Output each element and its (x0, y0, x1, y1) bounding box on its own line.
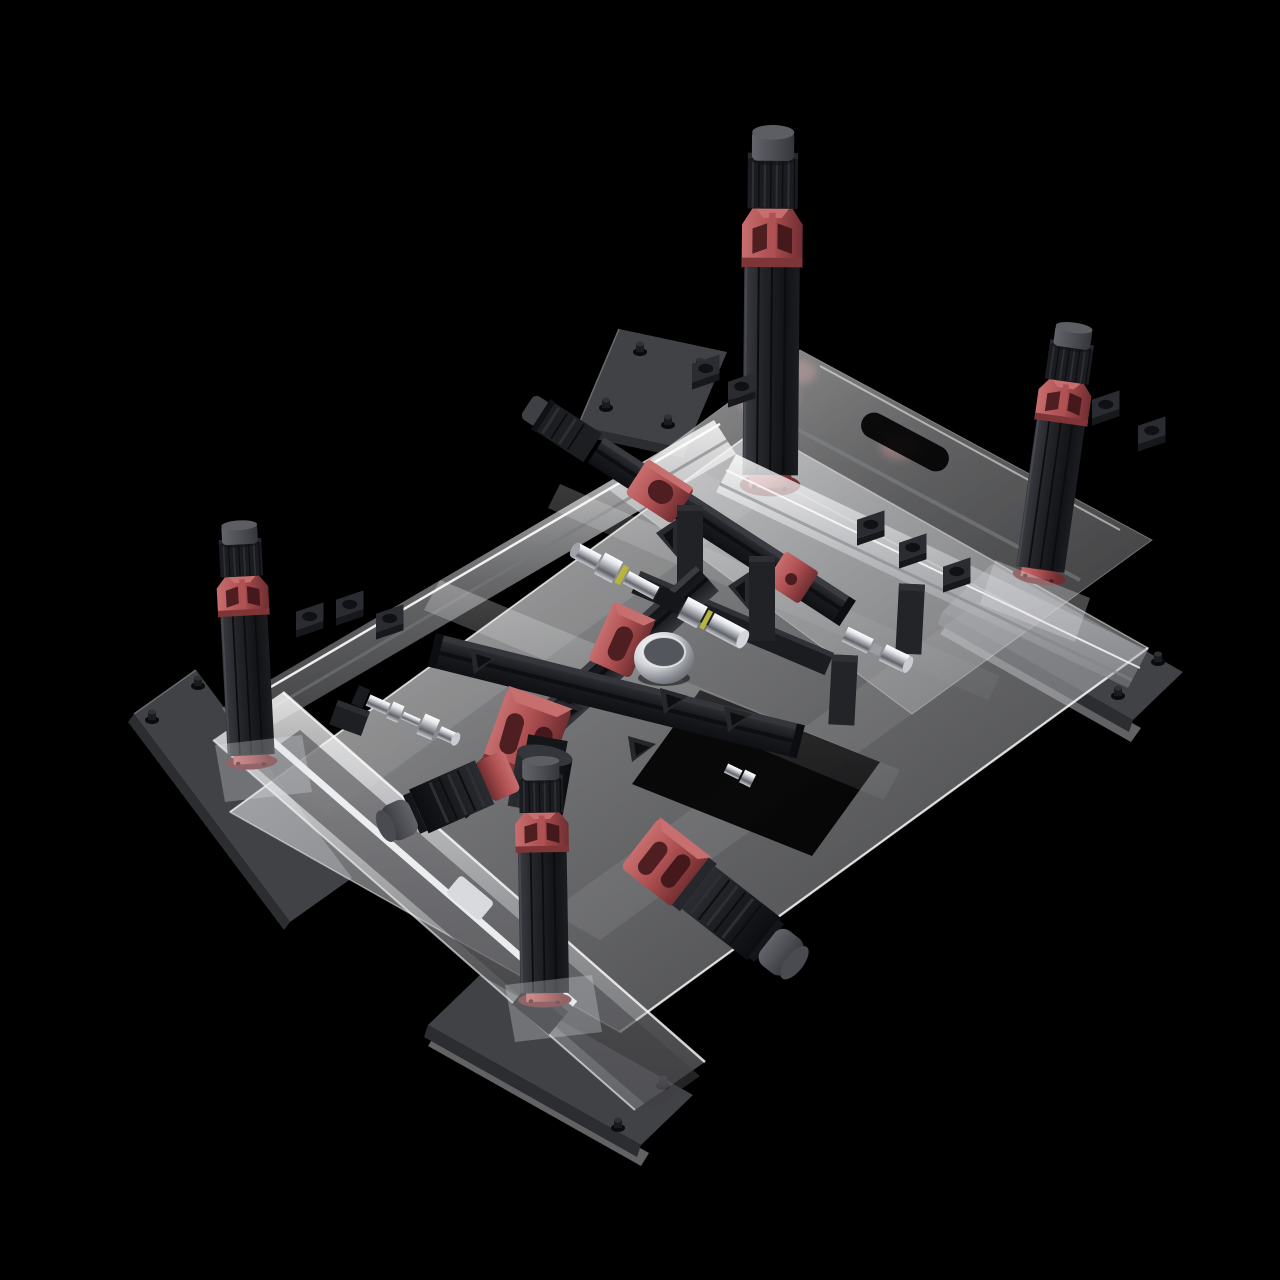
render-canvas (0, 0, 1280, 1280)
chrome-bowl (634, 632, 694, 686)
render-stage (0, 0, 1280, 1280)
frame-post (895, 583, 925, 654)
frame-post (828, 654, 858, 725)
tower-top (740, 125, 804, 497)
glass-over-flange (215, 735, 312, 802)
tower-bottom (514, 756, 572, 1008)
glass-over-flange (505, 975, 602, 1042)
